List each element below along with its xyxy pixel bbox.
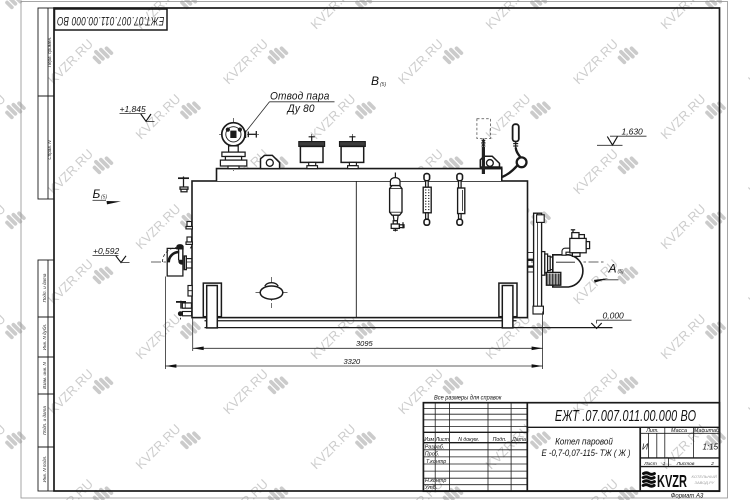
svg-text:1: 1 [663, 461, 666, 467]
svg-text:0,000: 0,000 [603, 311, 625, 321]
svg-text:Ду 80: Ду 80 [287, 103, 315, 115]
svg-text:Масса: Масса [671, 428, 687, 434]
svg-text:Инв. N дубл.: Инв. N дубл. [42, 324, 47, 351]
svg-text:3095: 3095 [356, 339, 374, 348]
svg-text:KVZR: KVZR [657, 471, 687, 491]
svg-text:ЕЖТ.07.007.011.00.000 ВО: ЕЖТ.07.007.011.00.000 ВО [57, 13, 164, 26]
svg-text:Листов: Листов [676, 461, 695, 467]
svg-text:Масштаб: Масштаб [694, 428, 720, 434]
svg-text:Справ. N: Справ. N [47, 140, 52, 160]
svg-text:(5): (5) [380, 82, 386, 88]
svg-text:В: В [371, 74, 379, 88]
svg-text:Взам. инв. N: Взам. инв. N [42, 361, 47, 388]
svg-text:Перв. примен.: Перв. примен. [47, 37, 52, 68]
svg-text:Утб.: Утб. [424, 485, 437, 491]
svg-text:Лист: Лист [643, 461, 657, 467]
svg-text:Проб.: Проб. [425, 452, 439, 458]
svg-text:Н.контр: Н.контр [425, 478, 446, 484]
svg-text:КОТЕЛЬНЫЙ: КОТЕЛЬНЫЙ [692, 474, 717, 479]
svg-text:Отвод пара: Отвод пара [270, 90, 330, 102]
svg-text:Подп. и дата: Подп. и дата [42, 406, 47, 435]
svg-text:(5): (5) [101, 195, 107, 201]
svg-text:Лит.: Лит. [645, 428, 659, 434]
svg-text:1:15: 1:15 [703, 442, 719, 451]
svg-text:Котел паровой: Котел паровой [555, 436, 613, 447]
svg-text:2: 2 [710, 461, 714, 467]
svg-text:Подп.: Подп. [493, 437, 507, 443]
svg-text:+0,592: +0,592 [93, 246, 120, 256]
svg-text:N докум.: N докум. [458, 437, 479, 443]
svg-text:Е -0,7-0,07-115- ТЖ ( Ж ): Е -0,7-0,07-115- ТЖ ( Ж ) [542, 447, 631, 458]
svg-text:Разраб.: Разраб. [425, 444, 445, 450]
svg-text:ЕЖТ .07.007.011.00.000 ВО: ЕЖТ .07.007.011.00.000 ВО [555, 407, 697, 424]
svg-text:ЗАВОД.РУ: ЗАВОД.РУ [695, 480, 715, 485]
svg-text:Б: Б [93, 187, 101, 201]
svg-text:3320: 3320 [344, 357, 362, 366]
svg-text:А: А [608, 262, 617, 276]
svg-text:Формат А3: Формат А3 [671, 492, 704, 499]
svg-text:Все размеры для справок: Все размеры для справок [434, 394, 502, 402]
svg-text:Изм: Изм [424, 437, 434, 443]
svg-text:Инв. N подл.: Инв. N подл. [42, 456, 47, 483]
svg-text:(5): (5) [618, 269, 624, 275]
svg-text:+1,845: +1,845 [120, 104, 147, 114]
svg-text:1,630: 1,630 [622, 127, 644, 137]
svg-text:Т.контр: Т.контр [426, 459, 446, 465]
svg-text:Подп. и дата: Подп. и дата [42, 273, 47, 302]
svg-text:Дата: Дата [511, 437, 526, 443]
svg-text:Лист: Лист [435, 437, 450, 443]
svg-text:И: И [642, 441, 649, 451]
